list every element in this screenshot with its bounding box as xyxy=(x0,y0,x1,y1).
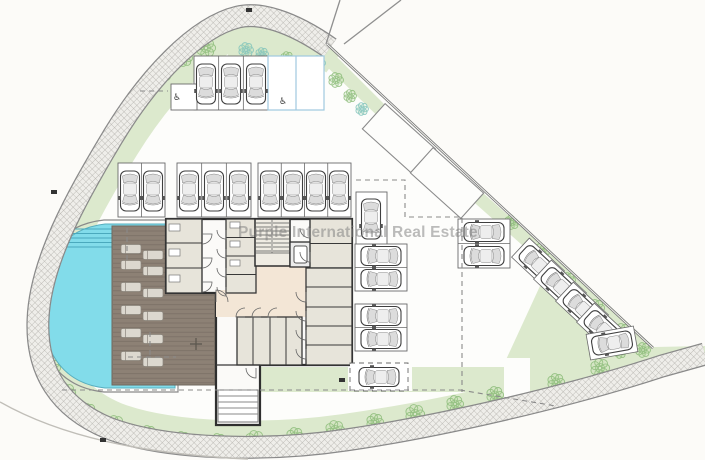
car xyxy=(202,171,226,211)
bathroom-fixture xyxy=(230,260,240,266)
bathroom-fixture xyxy=(169,275,180,282)
watermark-text: Purple International Real Estate xyxy=(238,224,478,241)
sun-lounger xyxy=(143,251,163,260)
sun-lounger xyxy=(143,335,163,344)
car xyxy=(177,171,201,211)
bathroom-fixture xyxy=(169,249,180,256)
car xyxy=(361,244,401,268)
sun-lounger xyxy=(121,261,141,270)
survey-tick xyxy=(100,438,106,442)
sun-lounger xyxy=(121,245,141,254)
car xyxy=(194,64,218,104)
car xyxy=(227,171,251,211)
car xyxy=(304,171,328,211)
bathroom-fixture xyxy=(230,241,240,247)
storeroom-right-column xyxy=(306,268,352,365)
floor-plan: ♿♿ Purple International Real Estate xyxy=(0,0,705,460)
car xyxy=(327,171,351,211)
sun-lounger xyxy=(143,312,163,321)
sun-lounger xyxy=(121,283,141,292)
car xyxy=(361,304,401,328)
survey-tick xyxy=(339,378,345,382)
car xyxy=(244,64,268,104)
survey-tick xyxy=(246,8,252,12)
bathroom-fixture xyxy=(169,224,180,231)
floor-plan-canvas: ♿♿ Purple International Real Estate xyxy=(0,0,705,460)
car xyxy=(258,171,282,211)
survey-tick xyxy=(51,190,57,194)
accessible-parking-icon: ♿ xyxy=(173,93,181,103)
entrance-steps xyxy=(218,390,258,422)
accessible-stalls xyxy=(268,56,324,110)
sun-lounger xyxy=(143,267,163,276)
car xyxy=(361,267,401,291)
car xyxy=(281,171,305,211)
car xyxy=(359,365,399,389)
sun-lounger xyxy=(143,358,163,367)
sun-lounger xyxy=(143,289,163,298)
car xyxy=(219,64,243,104)
sun-lounger xyxy=(121,352,141,361)
car xyxy=(141,171,165,211)
lobby xyxy=(252,266,306,290)
car xyxy=(361,327,401,351)
accessible-parking-icon: ♿ xyxy=(279,97,287,107)
car xyxy=(118,171,142,211)
lobby xyxy=(216,290,306,317)
sun-lounger xyxy=(121,329,141,338)
car xyxy=(464,244,504,268)
sun-lounger xyxy=(121,306,141,315)
